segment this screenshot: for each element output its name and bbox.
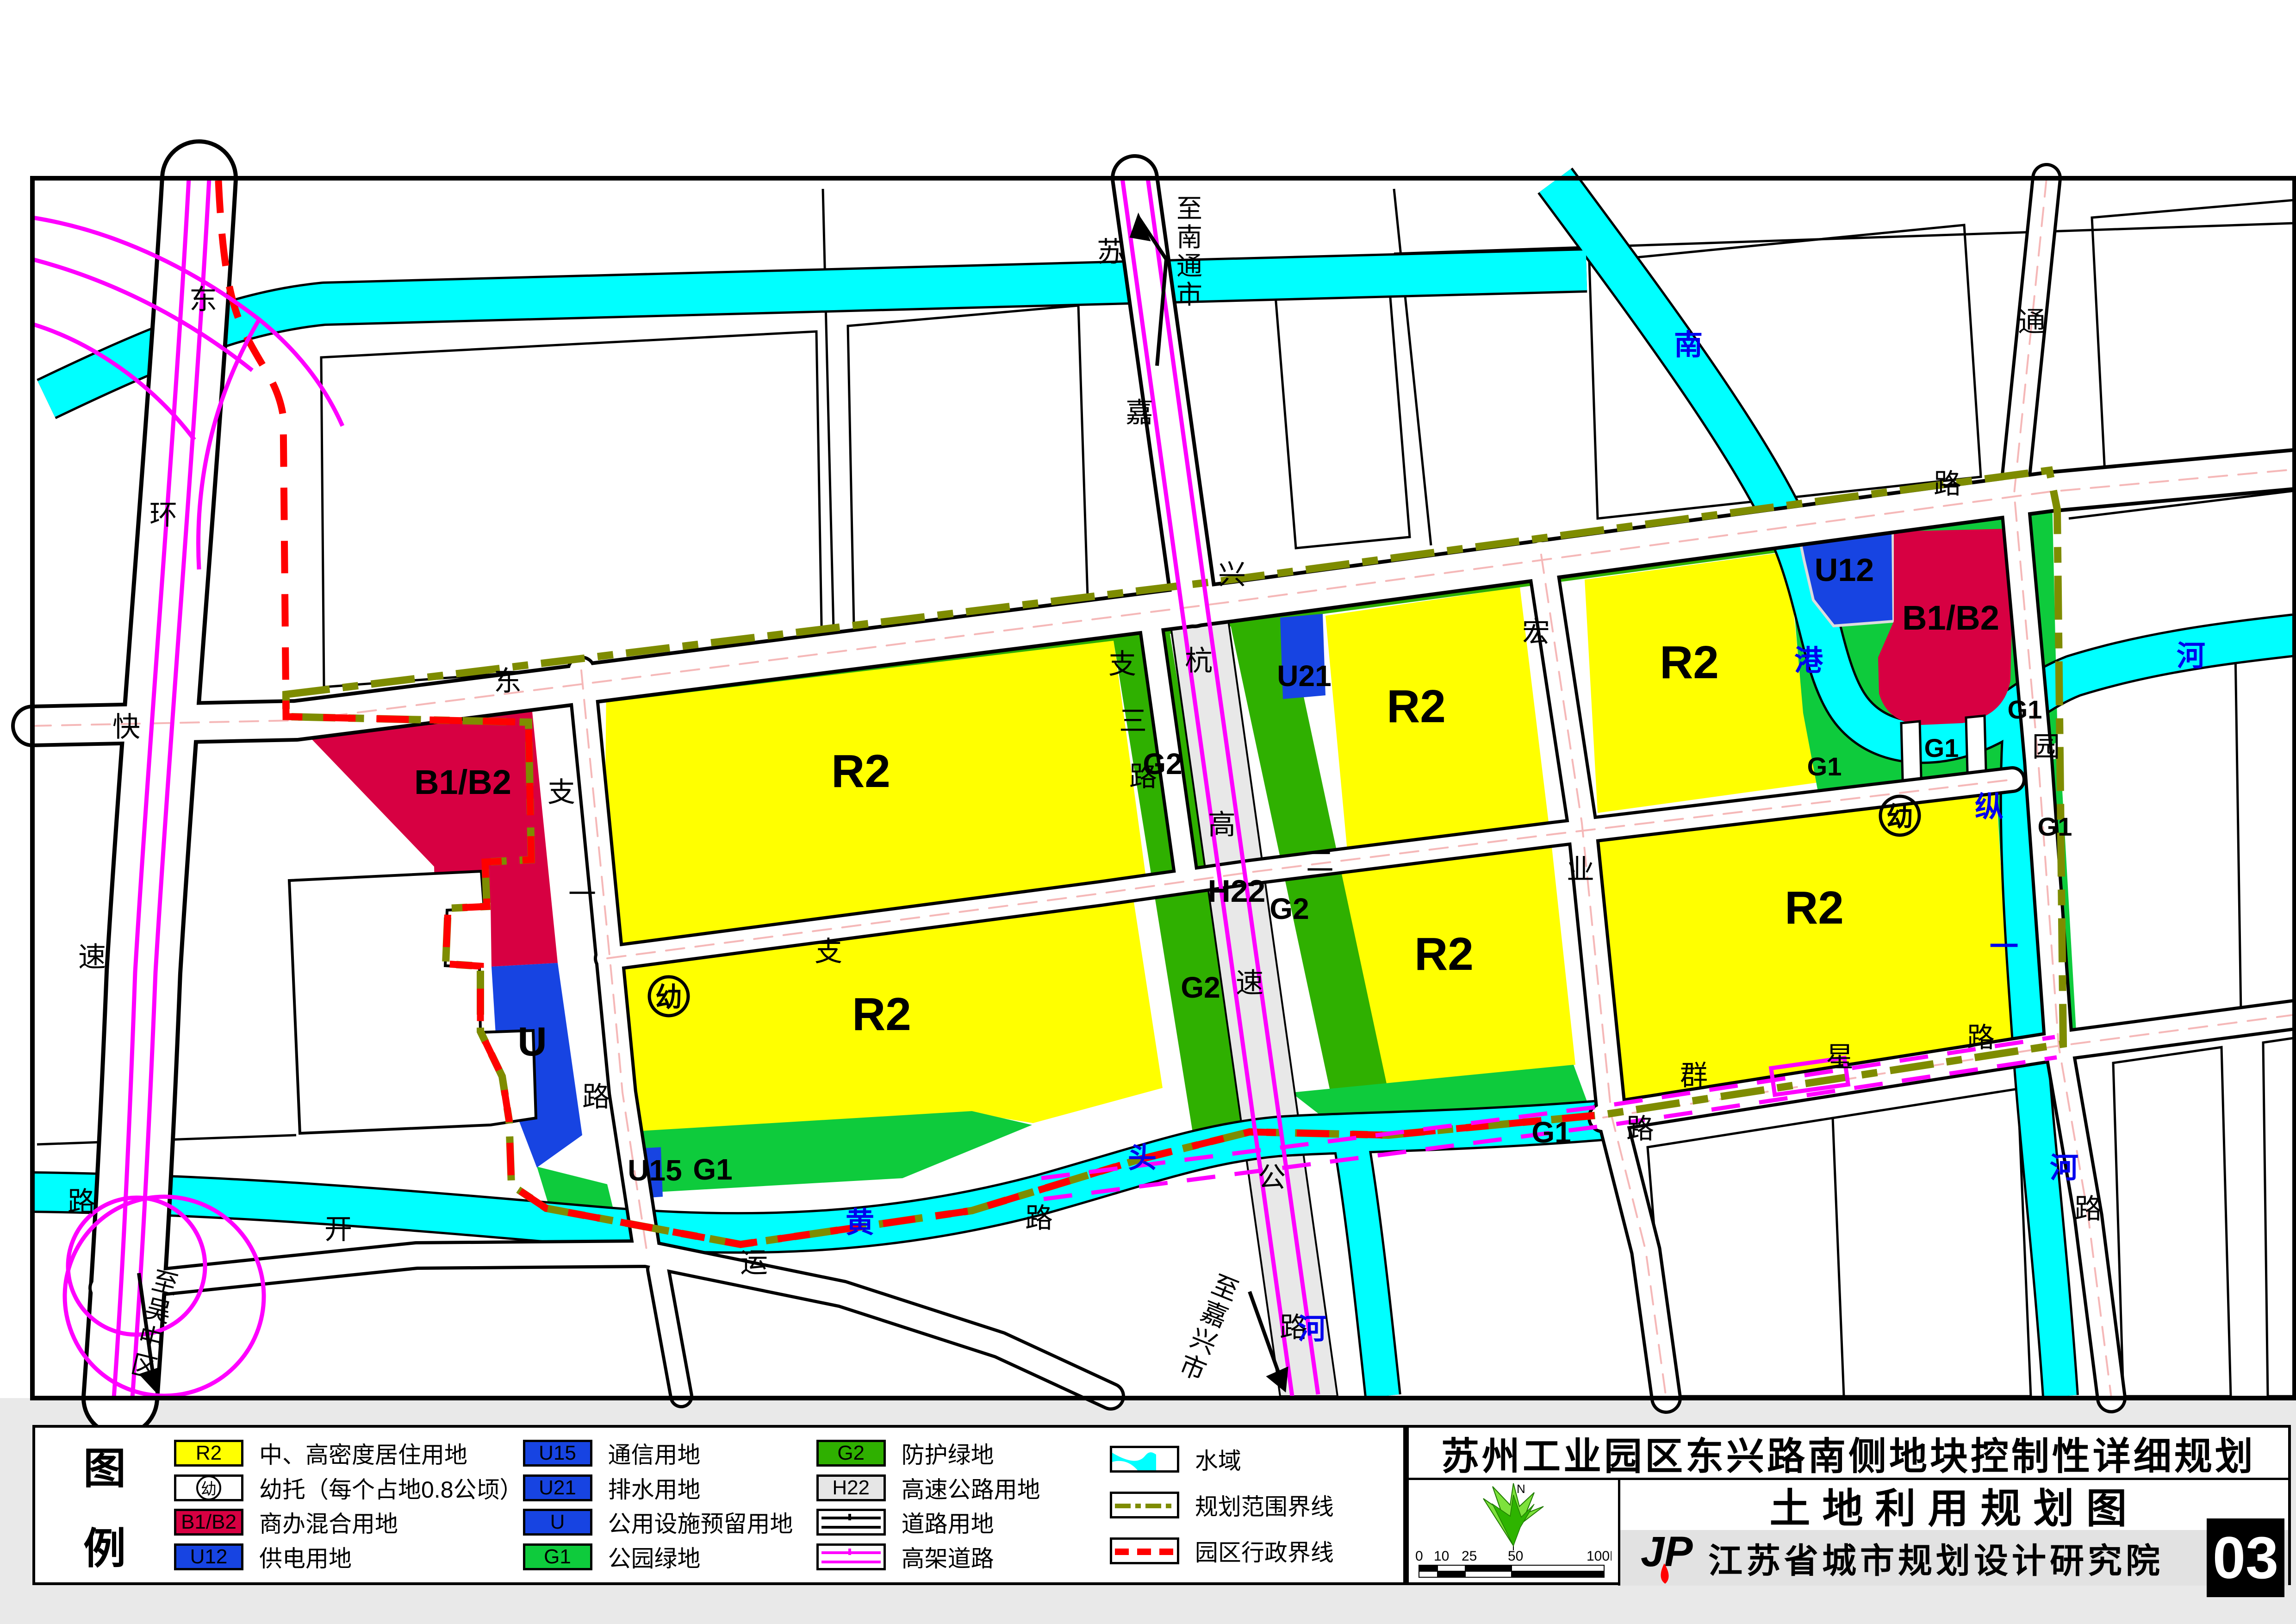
legend-column: 水域规划范围界线园区行政界线 (1110, 1428, 1403, 1582)
river-name-char: 一 (1990, 931, 2018, 963)
road-name-char: 东 (494, 666, 522, 697)
legend-label: 水域 (1195, 1443, 1241, 1476)
kindergarten-char: 幼 (1886, 802, 1913, 832)
road-name-char: 业 (1567, 854, 1594, 885)
legend-item: 园区行政界线 (1110, 1536, 1403, 1566)
direction-label: 至南通市 (1176, 194, 1202, 309)
legend-item: 高架道路 (816, 1542, 1110, 1572)
road-name-char: 路 (1967, 1022, 1995, 1053)
scale-bar: 0102550100M (1415, 1545, 1612, 1584)
svg-text:南: 南 (1176, 223, 1202, 252)
parcel-label: H22 (1208, 874, 1266, 909)
parcel-label: R2 (1414, 928, 1474, 980)
legend-swatch-U21: U21 (523, 1474, 592, 1501)
legend-column: U15通信用地U21排水用地U公用设施预留用地G1公园绿地 (523, 1428, 816, 1582)
legend-columns: R2中、高密度居住用地幼幼托（每个占地0.8公顷）B1/B2商办混合用地U12供… (174, 1428, 1403, 1582)
legend-swatch-幼: 幼 (174, 1474, 243, 1501)
parcel-label: G2 (1269, 892, 1309, 925)
kindergarten-char: 幼 (655, 982, 682, 1012)
legend-label: 通信用地 (608, 1437, 701, 1470)
parcel-label: R2 (852, 988, 911, 1040)
legend-item: G2防护绿地 (816, 1438, 1110, 1468)
road-name-char: 杭 (1185, 645, 1213, 676)
legend-label: 高速公路用地 (902, 1471, 1040, 1505)
parcel-label: R2 (1387, 681, 1446, 732)
road-name-char: 星 (1826, 1042, 1854, 1073)
road-name-char: 运 (740, 1247, 768, 1278)
parcel-label: G1 (1924, 733, 1959, 762)
legend-swatch-G1: G1 (523, 1543, 592, 1570)
legend-label: 园区行政界线 (1195, 1534, 1334, 1568)
legend-swatch-boundary-olive (1110, 1492, 1179, 1518)
parcel-label: G2 (1181, 971, 1220, 1004)
legend-label: 中、高密度居住用地 (259, 1437, 467, 1470)
page-number: 03 (2207, 1518, 2284, 1597)
road-name-char: 群 (1680, 1060, 1708, 1091)
legend-swatch-H22: H22 (816, 1474, 886, 1501)
institute-logo: JP (1639, 1530, 1694, 1586)
parcel-label: R2 (1785, 882, 1844, 934)
road-name-char: 嘉 (1126, 397, 1153, 428)
parcel-label: R2 (1660, 637, 1719, 688)
title-block: 苏州工业园区东兴路南侧地块控制性详细规划 N 0102550100M (1406, 1425, 2291, 1585)
legend-swatch-road (816, 1509, 886, 1536)
parcel-label: U21 (1277, 659, 1331, 693)
legend-label: 道路用地 (902, 1505, 994, 1539)
legend-label: 供电用地 (259, 1540, 352, 1574)
legend-label: 排水用地 (608, 1471, 701, 1505)
legend-item: R2中、高密度居住用地 (174, 1438, 523, 1468)
compass-n: N (1517, 1482, 1525, 1496)
legend-item: B1/B2商办混合用地 (174, 1507, 523, 1537)
legend-item: U公用设施预留用地 (523, 1507, 816, 1537)
road-name-char: 宏 (1522, 617, 1550, 648)
parcel-label: U (517, 1018, 547, 1064)
legend-swatch-elevated (816, 1543, 886, 1570)
parcel-label: U15 (628, 1154, 682, 1187)
road-name-char: 速 (1236, 968, 1263, 999)
road-name-char: 公 (1258, 1162, 1286, 1193)
road-name-char: 三 (1119, 706, 1147, 737)
canal-south-branch (1351, 1143, 1383, 1396)
institute-row: JP 江苏省城市规划设计研究院 03 (1620, 1530, 2288, 1586)
road-name-char: 环 (149, 500, 177, 531)
legend-label: 高架道路 (902, 1540, 994, 1574)
legend-item: H22高速公路用地 (816, 1473, 1110, 1503)
road-name-char: 支 (815, 936, 842, 967)
river-name-char: 头 (1128, 1142, 1157, 1174)
legend-item: U21排水用地 (523, 1473, 816, 1503)
legend-swatch-U15: U15 (523, 1440, 592, 1467)
road-name-char: 速 (78, 942, 106, 973)
road-name-char: 苏 (1097, 237, 1125, 268)
road-name-char: 一 (568, 879, 596, 910)
legend-swatch-R2: R2 (174, 1440, 243, 1467)
svg-text:通: 通 (1176, 251, 1202, 281)
scale-tick: 25 (1462, 1549, 1477, 1564)
legend-item: 水域 (1110, 1444, 1403, 1474)
legend-label: 公园绿地 (608, 1540, 701, 1574)
legend-column: G2防护绿地H22高速公路用地道路用地高架道路 (816, 1428, 1110, 1582)
river-name-char: 黄 (846, 1207, 874, 1239)
legend-item: 规划范围界线 (1110, 1490, 1403, 1520)
road-name-char: 开 (324, 1214, 352, 1245)
road-name-char: 路 (582, 1081, 610, 1112)
road-name-char: 路 (1025, 1203, 1053, 1234)
parcel-label: G1 (2008, 695, 2042, 724)
scale-tick: 0 (1415, 1549, 1423, 1564)
legend-swatch-G2: G2 (816, 1440, 886, 1467)
project-title: 苏州工业园区东兴路南侧地块控制性详细规划 (1409, 1428, 2288, 1480)
road-name-char: 二 (1306, 846, 1334, 877)
legend-label: 幼托（每个占地0.8公顷） (259, 1471, 523, 1505)
river-name-char: 纵 (1975, 791, 2004, 823)
road-name-char: 园 (2032, 731, 2060, 762)
road-name-char: 路 (68, 1187, 95, 1218)
legend-swatch-U12: U12 (174, 1543, 243, 1570)
road-name-char: 东 (189, 284, 217, 315)
parcel-label: U12 (1815, 552, 1874, 588)
svg-text:市: 市 (1176, 280, 1202, 309)
road-name-char: 高 (1208, 809, 1236, 840)
parcel-label: B1/B2 (414, 763, 511, 801)
parcel-label: G1 (1531, 1116, 1571, 1149)
svg-text:至: 至 (1176, 194, 1202, 223)
map-canvas: R2R2R2R2R2R2B1/B2B1/B2UU12U15U21H22G2G2G… (0, 0, 2296, 1624)
river-name-char: 河 (2177, 640, 2205, 672)
scale-tick: 10 (1434, 1549, 1449, 1564)
legend-swatch-B1/B2: B1/B2 (174, 1509, 243, 1536)
scale-tick: 50 (1508, 1549, 1523, 1564)
legend-label: 商办混合用地 (259, 1505, 398, 1539)
scale-tick: 100M (1587, 1549, 1612, 1564)
parcel-label: G1 (693, 1153, 732, 1186)
legend-column: R2中、高密度居住用地幼幼托（每个占地0.8公顷）B1/B2商办混合用地U12供… (174, 1428, 523, 1582)
road-name-char: 通 (2018, 306, 2046, 337)
direction-label: 至嘉兴市 (1176, 1269, 1243, 1386)
legend-label: 公用设施预留用地 (608, 1505, 793, 1539)
legend-label: 防护绿地 (902, 1437, 994, 1470)
road-name-char: 路 (1129, 761, 1157, 792)
river-name-char: 港 (1794, 645, 1823, 677)
legend-panel: 图 例 R2中、高密度居住用地幼幼托（每个占地0.8公顷）B1/B2商办混合用地… (32, 1425, 1406, 1585)
road-name-char: 路 (1934, 468, 1961, 500)
road-name-char: 路 (2074, 1193, 2102, 1224)
parcel-label: R2 (831, 745, 890, 797)
parcel-label: G1 (2038, 812, 2072, 841)
legend-item: G1公园绿地 (523, 1542, 816, 1572)
institute-name: 江苏省城市规划设计研究院 (1708, 1533, 2164, 1583)
legend-label: 规划范围界线 (1195, 1488, 1334, 1522)
legend-item: U12供电用地 (174, 1542, 523, 1572)
map-title: 土地利用规划图 (1620, 1480, 2288, 1530)
legend-swatch-water (1110, 1446, 1179, 1473)
road-name-char: 支 (1108, 649, 1136, 680)
parcel-label: G1 (1807, 752, 1842, 781)
compass-scale-cell: N 0102550100M (1409, 1480, 1620, 1586)
legend-title: 图 例 (35, 1428, 174, 1582)
legend-item: 道路用地 (816, 1507, 1110, 1537)
river-name-char: 南 (1674, 329, 1703, 361)
legend-swatch-U: U (523, 1509, 592, 1536)
road-name-char: 快 (112, 712, 140, 743)
legend-item: 幼幼托（每个占地0.8公顷） (174, 1473, 523, 1503)
plan-sheet: R2R2R2R2R2R2B1/B2B1/B2UU12U15U21H22G2G2G… (0, 0, 2296, 1624)
road-name-char: 支 (548, 777, 575, 808)
legend-swatch-boundary-red (1110, 1537, 1179, 1564)
river-name-char: 河 (1298, 1313, 1326, 1345)
road-name-char: 路 (1626, 1113, 1654, 1144)
river-name-char: 河 (2050, 1152, 2078, 1184)
north-compass: N (1465, 1481, 1562, 1555)
parcel-label: B1/B2 (1902, 599, 1999, 637)
road-name-char: 兴 (1218, 559, 1246, 590)
legend-item: U15通信用地 (523, 1438, 816, 1468)
